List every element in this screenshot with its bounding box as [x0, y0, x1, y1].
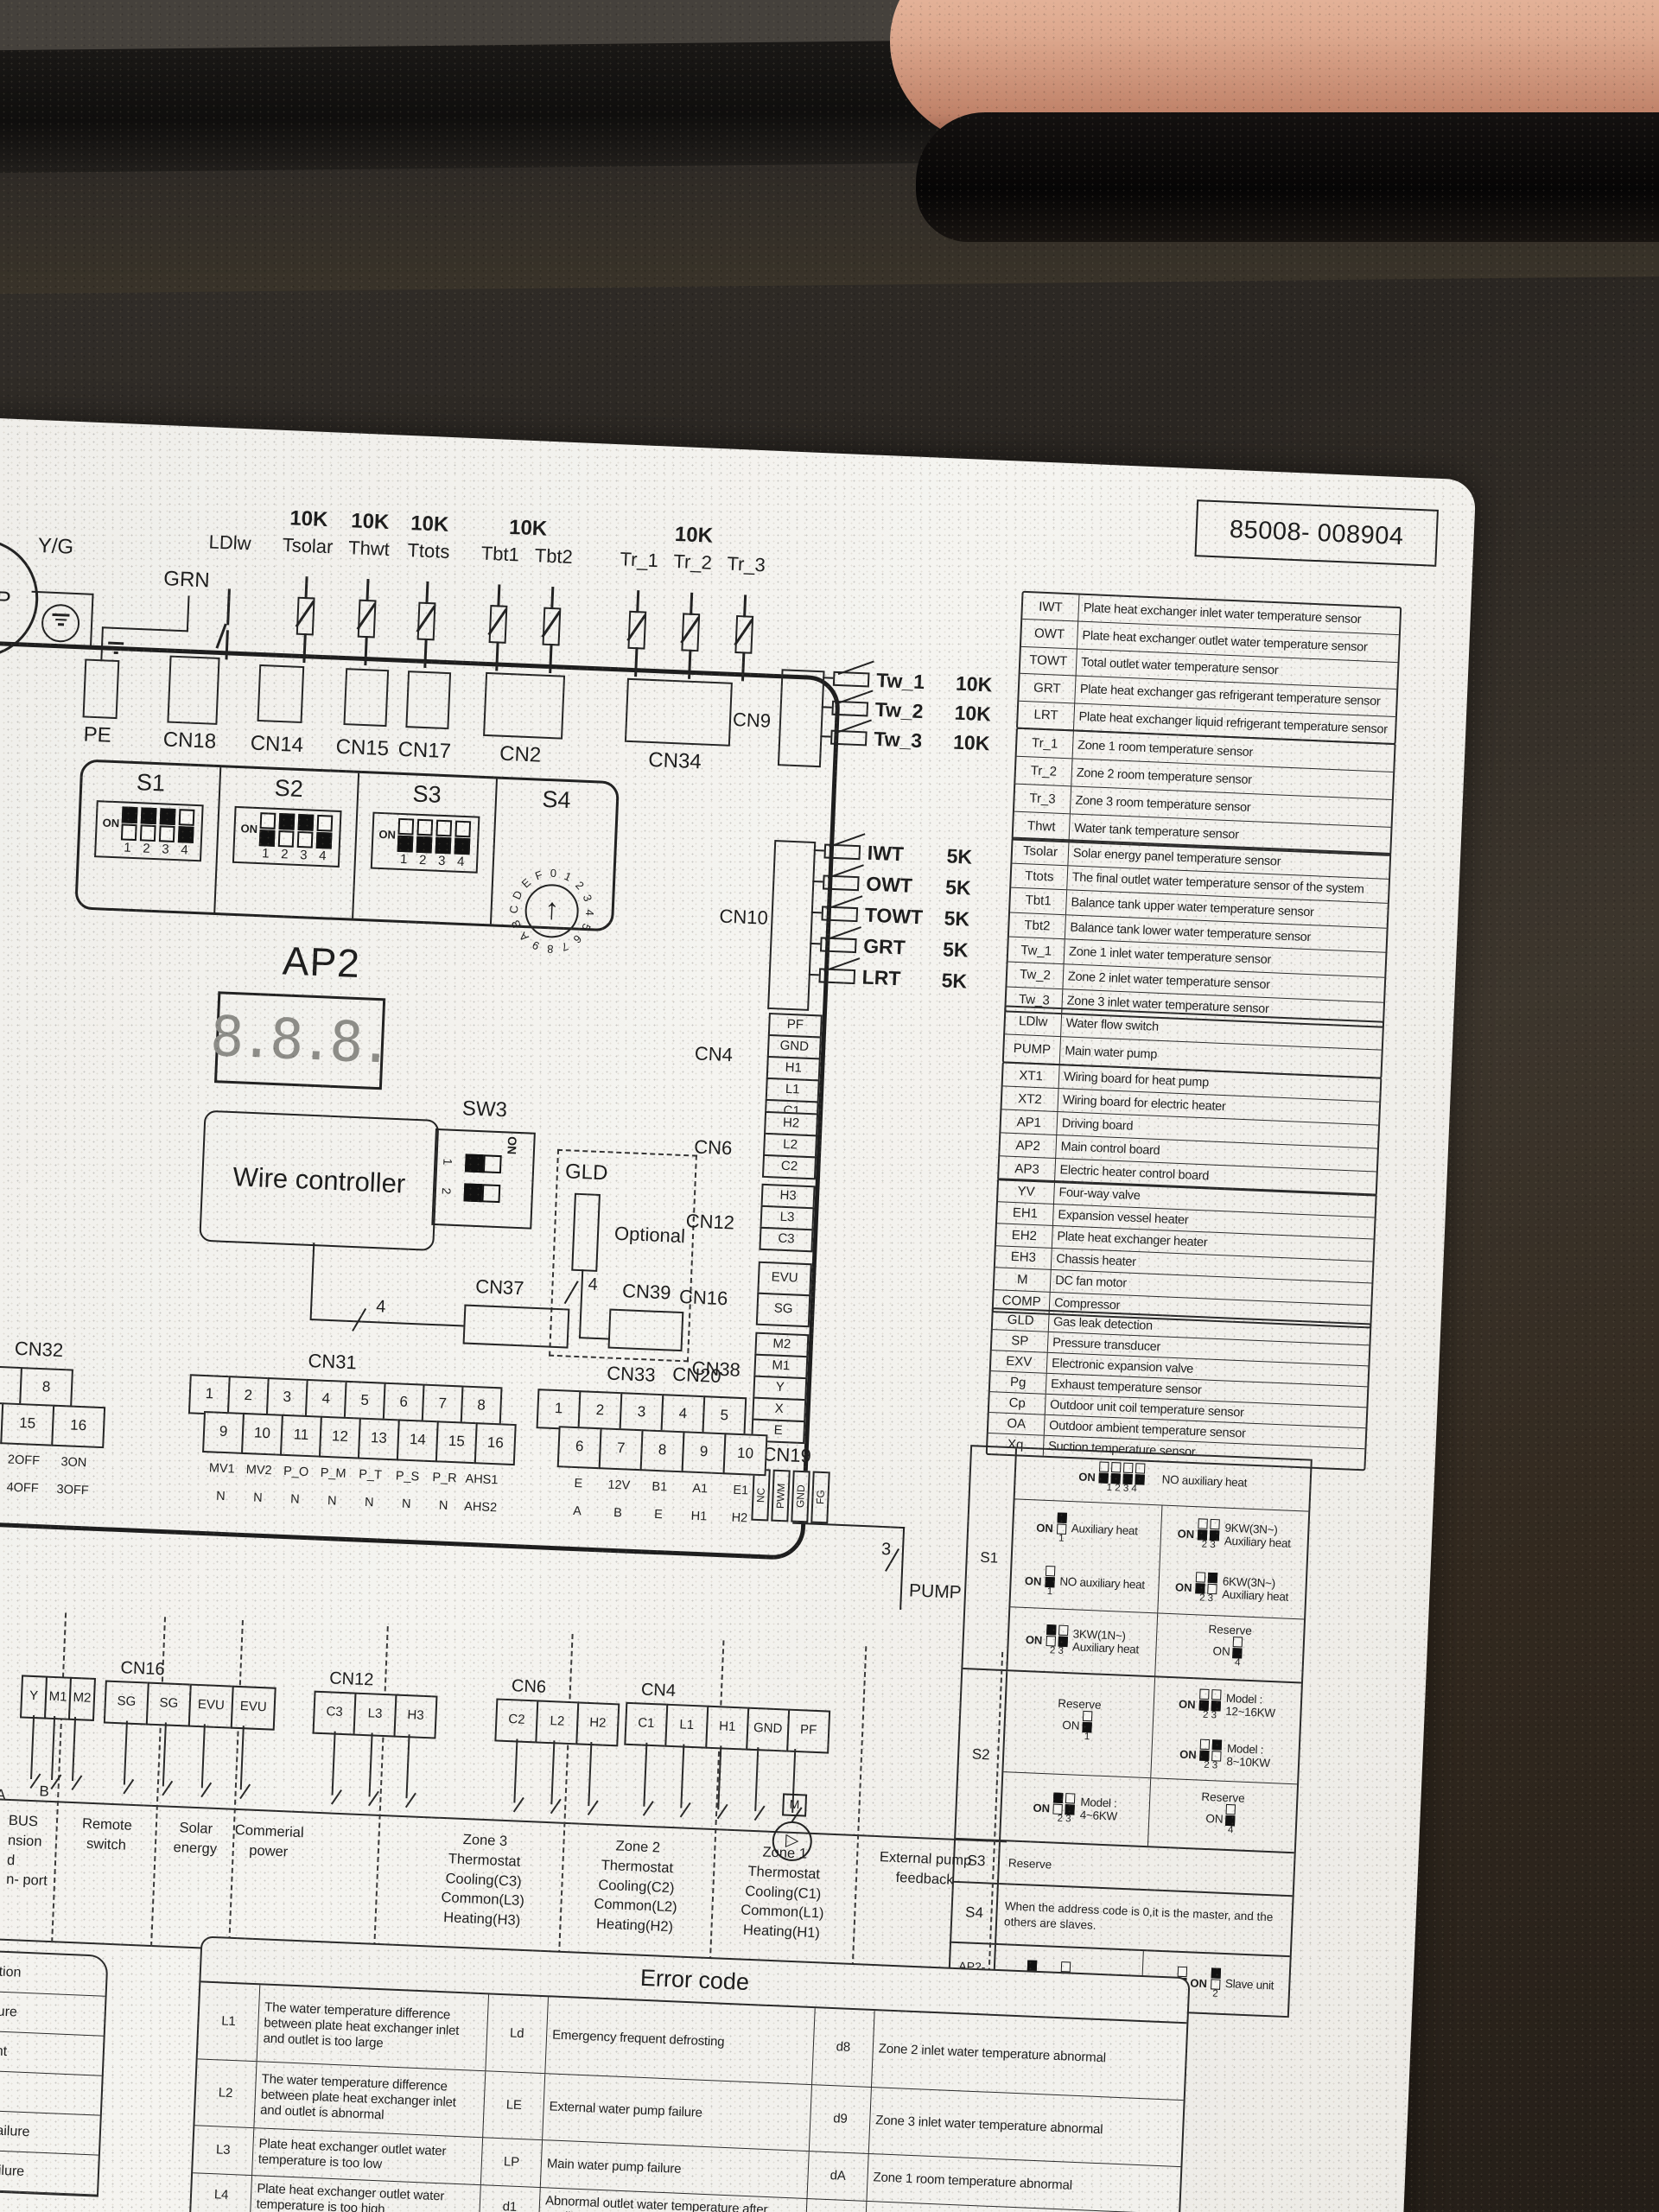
- cn19-pins: NCPWMGNDFG: [751, 1469, 829, 1524]
- sw3-num2: 2: [440, 1187, 454, 1194]
- gld-label: GLD: [564, 1160, 607, 1185]
- wire: [368, 1732, 372, 1796]
- thermistor-icon: [734, 615, 753, 654]
- dip-num: 1: [257, 846, 274, 861]
- legend-tables: IWTPlate heat exchanger inlet water temp…: [0, 416, 1476, 480]
- strip-cell: 16: [474, 1422, 517, 1465]
- legend-code: AP3: [999, 1156, 1056, 1181]
- sensor-resistance: 10K: [493, 515, 563, 542]
- line-name: Tw_3: [874, 727, 954, 753]
- dip-slot: [1198, 1518, 1209, 1540]
- sensor-name: Ttots: [390, 538, 467, 564]
- sensor-name: LDlw: [192, 531, 269, 556]
- connector-cn9: [778, 669, 825, 767]
- legend-group: XT1Wiring board for heat pumpXT2Wiring b…: [997, 1061, 1382, 1196]
- dip-slot: [397, 818, 414, 853]
- error-code: Ld: [486, 1994, 549, 2073]
- strip-cell: 8: [19, 1367, 73, 1409]
- strip-cell: 3: [619, 1392, 664, 1433]
- pin: H2: [575, 1701, 620, 1746]
- config-cell: ON2 39KW(3N~)Auxiliary heat: [1160, 1506, 1308, 1566]
- wiring-diagram-label: 85008- 008904 PUMP Y/G GRN PE LDlwCN1810…: [0, 416, 1476, 2212]
- strip-pin-label: P_R: [426, 1471, 464, 1486]
- optional-label: Optional: [614, 1223, 686, 1248]
- dip-title: S2: [220, 772, 358, 805]
- config-cell: ON1Auxiliary heat: [1013, 1499, 1161, 1559]
- config-text: Auxiliary heat: [1071, 1522, 1137, 1538]
- pin: GND: [746, 1707, 790, 1752]
- strip-pin-label: AHS1: [463, 1472, 501, 1488]
- sensor-line: IWT5K: [813, 840, 972, 868]
- legend-code: Tsolar: [1012, 839, 1069, 865]
- strip-pin-label: E: [638, 1507, 679, 1522]
- flow-switch-icon: [226, 588, 230, 625]
- connector-label: CN6: [694, 1135, 733, 1160]
- strip-cell: 4: [660, 1394, 705, 1435]
- dip-slot: [1110, 1462, 1122, 1484]
- line-value: 10K: [953, 730, 990, 755]
- connector-label: CN16: [679, 1286, 728, 1310]
- strip-cell: 2: [227, 1376, 270, 1417]
- strip-cell: 9: [202, 1411, 245, 1454]
- config-text: NO auxiliary heat: [1161, 1473, 1247, 1490]
- part-number: 85008- 008904: [1194, 499, 1439, 567]
- dip-slot: [1082, 1710, 1093, 1732]
- pin: SG: [104, 1680, 149, 1725]
- dip-nums: 1: [1084, 1732, 1090, 1741]
- on-label: ON: [1025, 1573, 1042, 1587]
- sensor-resistance: 10K: [395, 511, 465, 537]
- legend-code: Ttots: [1011, 863, 1068, 889]
- strip-cell: 2: [578, 1390, 623, 1432]
- pump-out-label: PUMP: [909, 1580, 963, 1604]
- resistor-icon: [831, 700, 868, 716]
- line-name: Tw_2: [874, 697, 955, 724]
- error-code: dA: [808, 2152, 869, 2201]
- config-text: Model :4~6KW: [1079, 1796, 1117, 1823]
- cut-row: tion: [0, 1945, 106, 1997]
- strip-cell: 1: [188, 1374, 231, 1415]
- config-cell: ON2 3Model :8~10KW: [1151, 1727, 1300, 1783]
- sensor-resistance: 10K: [658, 522, 728, 549]
- on-label: ON: [1212, 1644, 1230, 1658]
- error-desc: Zone 3 inlet water temperature abnormal: [869, 2088, 1184, 2166]
- legend-code: EH3: [995, 1246, 1052, 1269]
- dip-slot: [1211, 1689, 1222, 1711]
- error-code: LE: [483, 2071, 545, 2139]
- on-label: ON: [1177, 1527, 1194, 1541]
- error-code-table: Error code L1The water temperature diffe…: [186, 1935, 1191, 2212]
- dip-nums: 2 3: [1203, 1711, 1217, 1721]
- strip-pin-label: 12V: [599, 1478, 640, 1493]
- pin: EVU: [757, 1262, 812, 1297]
- legend-code: IWT: [1022, 593, 1079, 621]
- cn19-pin: GND: [791, 1471, 810, 1523]
- legend-group: YVFour-way valveEH1Expansion vessel heat…: [992, 1178, 1377, 1328]
- sensor-line: Tw_110K: [823, 667, 993, 695]
- wire: [550, 1740, 555, 1804]
- config-dip: 1: [1056, 1512, 1067, 1543]
- strip-cell: 8: [640, 1429, 685, 1472]
- strip-cell: 6: [557, 1426, 602, 1469]
- wire: [102, 626, 188, 632]
- strip-pin-label: N: [313, 1493, 351, 1509]
- resistor-icon: [830, 729, 868, 746]
- line-value: 10K: [956, 671, 993, 696]
- legend-code: Tr_1: [1017, 729, 1074, 759]
- connector-cn15: [343, 668, 389, 727]
- config-reserve-cell: ReserveON4: [1148, 1778, 1297, 1847]
- line-value: 5K: [944, 906, 970, 931]
- legend-code: M: [995, 1268, 1052, 1291]
- error-desc: Emergency frequent defrosting: [545, 1997, 815, 2084]
- sensor-name: Tbt2: [515, 543, 592, 569]
- thermistor-icon: [417, 602, 436, 641]
- dip-slot: [296, 814, 314, 849]
- on-label: ON: [1026, 1633, 1043, 1647]
- strip-pin-label: N: [350, 1495, 388, 1510]
- connector-label: CN10: [719, 905, 768, 929]
- pin-stack-cn12: H3L3C3: [759, 1185, 815, 1253]
- strip-pin-label: B1: [639, 1479, 681, 1495]
- connector-label: CN20: [672, 1363, 721, 1388]
- thermistor-icon: [681, 613, 700, 652]
- legend-code: Tr_2: [1015, 757, 1072, 786]
- legend-group: TsolarSolar energy panel temperature sen…: [1004, 837, 1391, 1028]
- strip-label: CN31: [308, 1350, 357, 1374]
- error-code: L2: [194, 2059, 257, 2127]
- photo-scene: 85008- 008904 PUMP Y/G GRN PE LDlwCN1810…: [0, 0, 1659, 2212]
- strip-pin-label: N: [387, 1497, 425, 1512]
- connector-cn14: [257, 664, 305, 723]
- error-code: L3: [193, 2126, 254, 2175]
- pin: C3: [759, 1227, 813, 1253]
- config-reserve-cell: ReserveON1: [1004, 1671, 1154, 1767]
- cn37-wire-count: 4: [376, 1297, 386, 1317]
- dip-cell-s2: S2ON1234: [215, 767, 359, 918]
- error-desc: External water pump failure: [543, 2074, 812, 2151]
- gld-sensor-symbol: [571, 1193, 601, 1272]
- strip-cell: 10: [723, 1433, 768, 1476]
- config-text: Slave unit: [1225, 1978, 1274, 1993]
- config-dip: 1: [1082, 1710, 1093, 1741]
- dip-slot: [1057, 1512, 1068, 1534]
- sensor-line: Tw_210K: [821, 696, 991, 724]
- connector-label: CN4: [694, 1042, 733, 1066]
- dip-slot: [435, 820, 452, 855]
- pin-stack-cn4: PFGNDH1L1C1: [765, 1014, 823, 1124]
- strip-cell: 12: [319, 1416, 361, 1459]
- pin: SG: [756, 1293, 811, 1328]
- cn37-label: CN37: [448, 1274, 552, 1301]
- strip-pin-label: H2: [719, 1510, 760, 1526]
- dip-slot: [1211, 1967, 1222, 1989]
- dip-cell-s3: S3ON1234: [353, 773, 498, 925]
- dip-slot: [1045, 1566, 1056, 1587]
- dip-num: 2: [415, 853, 431, 868]
- legend-code: LRT: [1018, 701, 1075, 729]
- pin: SG: [146, 1682, 192, 1727]
- config-cell: ON2 36KW(3N~)Auxiliary heat: [1158, 1559, 1306, 1618]
- motor-m-label: M: [782, 1793, 807, 1816]
- wire: [405, 1734, 410, 1798]
- dip-nums: 2 3: [1057, 1815, 1071, 1825]
- pin: H3: [393, 1694, 437, 1739]
- dip-nums: 1 2 3 4: [1106, 1484, 1137, 1494]
- legend-code: OA: [988, 1413, 1046, 1435]
- strip-pin-label: E: [558, 1476, 600, 1491]
- zone-label: External pumpfeedback: [849, 1847, 1002, 1892]
- strip-pin-label: P_M: [315, 1465, 353, 1481]
- cn39-label: CN39: [603, 1279, 690, 1305]
- thermistor-icon: [358, 600, 377, 639]
- strip-pin-label: E1: [720, 1483, 761, 1498]
- pump-wire-count: 3: [881, 1540, 892, 1560]
- config-dip: 4: [1232, 1637, 1243, 1668]
- on-label: ON: [1205, 1812, 1224, 1826]
- pe-label: PE: [64, 722, 130, 749]
- error-code: d9: [810, 2085, 872, 2153]
- config-cell: ON1NO auxiliary heat: [1010, 1553, 1159, 1612]
- error-table-rows: L1The water temperature difference betwe…: [188, 1982, 1187, 2212]
- connector-label: CN16: [120, 1658, 165, 1680]
- sw3-row2: [463, 1183, 500, 1203]
- config-text: NO auxiliary heat: [1059, 1575, 1145, 1592]
- strip-pin-label: AHS2: [461, 1500, 499, 1516]
- dip-slot: [1207, 1573, 1218, 1594]
- dip-slot: [277, 813, 295, 848]
- grn-label: GRN: [163, 567, 210, 593]
- dip-cell-s1: S1ON1234: [77, 761, 221, 912]
- strip-cell: 6: [383, 1382, 425, 1424]
- strip-top-row: 5678: [0, 1361, 73, 1409]
- pin-stack-cn16: EVUSG: [756, 1263, 812, 1328]
- connector-label: CN9: [733, 709, 772, 733]
- strip-cell: 7: [422, 1384, 464, 1426]
- rotary-digit: 4: [583, 909, 596, 916]
- connector-cn17: [405, 671, 451, 729]
- strip-pin-label: MV2: [240, 1463, 278, 1478]
- pin: Y: [20, 1675, 48, 1719]
- pe-terminal: [83, 658, 120, 719]
- strip-cell: 11: [280, 1414, 322, 1458]
- resistor-icon: [823, 874, 860, 891]
- legend-code: OWT: [1021, 620, 1078, 648]
- line-value: 5K: [946, 844, 973, 868]
- strip-cell: 8: [461, 1385, 503, 1427]
- pin: L1: [664, 1704, 709, 1749]
- wire: [51, 1716, 55, 1780]
- legend-code: EXV: [991, 1351, 1048, 1373]
- rotary-digit: 8: [547, 943, 554, 956]
- bottom-connectors: YM1M2CN16SGSGEVUEVUCN12C3L3H3CN6C2L2H2CN…: [0, 416, 1476, 480]
- finger-shadow: [916, 112, 1659, 242]
- legend-code: EH1: [997, 1202, 1054, 1225]
- strip-cell: 15: [0, 1402, 54, 1446]
- dip-switch: ON1234: [371, 812, 480, 874]
- on-label: ON: [1078, 1470, 1096, 1484]
- rotary-digit: 1: [563, 869, 574, 884]
- dip-slot: [1098, 1461, 1109, 1483]
- error-code: L4: [191, 2173, 252, 2212]
- board-name: AP2: [243, 935, 400, 988]
- connector-label: CN12: [329, 1669, 374, 1690]
- thermistor-icon: [627, 611, 646, 650]
- config-cell: ON2 3Model :4~6KW: [1001, 1772, 1150, 1846]
- strip-pin-label: H1: [678, 1509, 720, 1524]
- strip-cell: 14: [397, 1419, 439, 1462]
- line-name: GRT: [863, 934, 944, 961]
- pin: C2: [494, 1698, 538, 1743]
- dip-num: 1: [119, 840, 136, 855]
- resistor-icon: [820, 937, 857, 953]
- line-name: IWT: [867, 841, 947, 868]
- strip-pin-label: B: [597, 1505, 639, 1521]
- sensor-line: OWT5K: [812, 871, 971, 899]
- legend-code: SP: [992, 1330, 1049, 1352]
- zone-labels: BUSnsiondn- portRemoteswitchSolarenergyC…: [0, 416, 1476, 480]
- dip-switch: ON1234: [94, 800, 203, 861]
- strip-cell: 9: [682, 1431, 727, 1474]
- left-cut-table: tionurentfailureailure: [0, 1943, 109, 2197]
- legend-code: LDlw: [1005, 1007, 1062, 1036]
- on-label: ON: [1062, 1719, 1080, 1732]
- rotary-digit: B: [509, 918, 524, 930]
- cn39-connector: [607, 1309, 683, 1352]
- cn37-connector: [463, 1305, 570, 1349]
- strip-pin-label: N: [239, 1491, 277, 1506]
- pin: M2: [68, 1677, 96, 1721]
- error-code: LP: [481, 2138, 543, 2187]
- legend-code: Tr_3: [1014, 785, 1071, 814]
- dip-title: S1: [82, 766, 219, 799]
- config-dip: 2 3: [1198, 1689, 1222, 1721]
- config-dip: 2 3: [1052, 1793, 1076, 1825]
- dip-slot: [416, 819, 433, 854]
- strip-pin-label: N: [276, 1492, 315, 1508]
- connector-label: CN12: [685, 1210, 734, 1234]
- config-dip: 2: [1210, 1967, 1221, 1999]
- error-code: dB: [805, 2199, 867, 2212]
- config-text: When the address code is 0,it is the mas…: [996, 1885, 1293, 1955]
- thermistor-icon: [489, 605, 508, 644]
- on-label: ON: [1179, 1697, 1196, 1711]
- line-value: 5K: [945, 875, 972, 899]
- config-text: Model :8~10KW: [1226, 1743, 1271, 1770]
- strip-pin-label: N: [424, 1498, 462, 1514]
- zone-label: Zone 3ThermostatCooling(C3)Common(L3)Hea…: [405, 1827, 562, 1932]
- connector-label: CN34: [632, 747, 716, 775]
- legend-code: Tbt1: [1010, 888, 1067, 914]
- connector-label: CN14: [235, 731, 319, 759]
- dip-slot: [1195, 1572, 1206, 1593]
- seven-segment-display: 8.8.8.: [214, 991, 385, 1090]
- dip-slot: [1046, 1624, 1057, 1646]
- wire: [680, 1745, 684, 1808]
- dip-switch: ON1234: [232, 806, 341, 868]
- rotary-digit: A: [517, 930, 531, 944]
- wire-controller-box: Wire controller: [199, 1110, 439, 1251]
- wire: [187, 595, 190, 632]
- pin: M1: [44, 1676, 72, 1720]
- error-desc: The water temperature difference between…: [254, 2062, 486, 2137]
- connector-cn6: C2L2H2: [496, 1699, 620, 1747]
- connector-bus: YM1M2: [22, 1675, 96, 1721]
- strip-cell: 5: [344, 1381, 386, 1422]
- dip-slot: [315, 815, 333, 849]
- dip-nums: 1: [1058, 1535, 1065, 1544]
- connector-cn34: [625, 678, 733, 747]
- wire: [899, 1527, 905, 1610]
- dip-num: 4: [315, 849, 331, 864]
- legend-code: Tw_1: [1008, 938, 1065, 963]
- dip-slot: [1122, 1463, 1134, 1484]
- earth-ground-icon: [41, 603, 80, 643]
- rotary-dial: ↑: [524, 883, 580, 939]
- legend-code: GRT: [1019, 674, 1076, 702]
- on-label: ON: [1179, 1747, 1197, 1761]
- pin: H1: [705, 1706, 749, 1751]
- connector-label: CN17: [383, 737, 467, 765]
- on-label: ON: [1033, 1801, 1050, 1815]
- sensor-line: TOWT5K: [810, 902, 969, 930]
- line-name: Tw_1: [876, 668, 957, 695]
- dip-nums: 2 3: [1199, 1593, 1213, 1604]
- pin: C2: [762, 1154, 817, 1180]
- on-label: ON: [1190, 1976, 1207, 1990]
- error-desc: The water temperature difference between…: [257, 1985, 489, 2070]
- strip-pin-label: 3ON: [48, 1455, 99, 1471]
- pin: C1: [624, 1702, 668, 1747]
- pin-stack-cn6: H2L2C2: [762, 1113, 818, 1180]
- sensor-name: Tr_3: [708, 552, 785, 578]
- line-name: OWT: [866, 872, 946, 899]
- wire: [30, 1715, 35, 1779]
- dip-switch-panel: S1ON1234S2ON1234S3ON1234S4↑0123456789ABC…: [74, 759, 620, 931]
- strip-pin-label: A: [556, 1503, 598, 1519]
- pin: EVU: [188, 1684, 234, 1729]
- error-desc: Zone 2 inlet water temperature abnormal: [872, 2011, 1186, 2100]
- connector-label: CN6: [512, 1676, 547, 1698]
- dip-nums: 2 3: [1050, 1646, 1064, 1656]
- connector-cn18: [167, 656, 219, 725]
- wire: [123, 1721, 127, 1785]
- legend-code: AP1: [1001, 1109, 1058, 1135]
- connector-cn2: [483, 672, 565, 740]
- dip-slot: [1211, 1739, 1223, 1761]
- config-dip: 4: [1225, 1803, 1236, 1834]
- pin: PF: [786, 1709, 830, 1754]
- legend-code: XT1: [1003, 1063, 1060, 1088]
- dip-nums: 4: [1235, 1658, 1241, 1668]
- rotary-digit: 9: [531, 938, 542, 953]
- config-reserve-cell: ReserveON4: [1155, 1613, 1304, 1676]
- connector-label: CN4: [640, 1680, 676, 1701]
- dip-num: 4: [176, 842, 193, 858]
- sw3-on: ON: [505, 1136, 519, 1155]
- pin: L3: [353, 1693, 397, 1738]
- dip-nums: 1: [1046, 1587, 1052, 1597]
- on-label: ON: [1036, 1521, 1053, 1535]
- pin: C3: [313, 1691, 357, 1736]
- dip-nums: 2 3: [1204, 1761, 1217, 1771]
- dip-slot: [454, 821, 471, 855]
- bus-a-label: A: [0, 1786, 6, 1803]
- strip-pin-label: MV1: [203, 1461, 241, 1477]
- dip-slot: [258, 812, 276, 847]
- config-text: 9KW(3N~)Auxiliary heat: [1224, 1522, 1292, 1551]
- gld-wire-count: 4: [588, 1274, 598, 1294]
